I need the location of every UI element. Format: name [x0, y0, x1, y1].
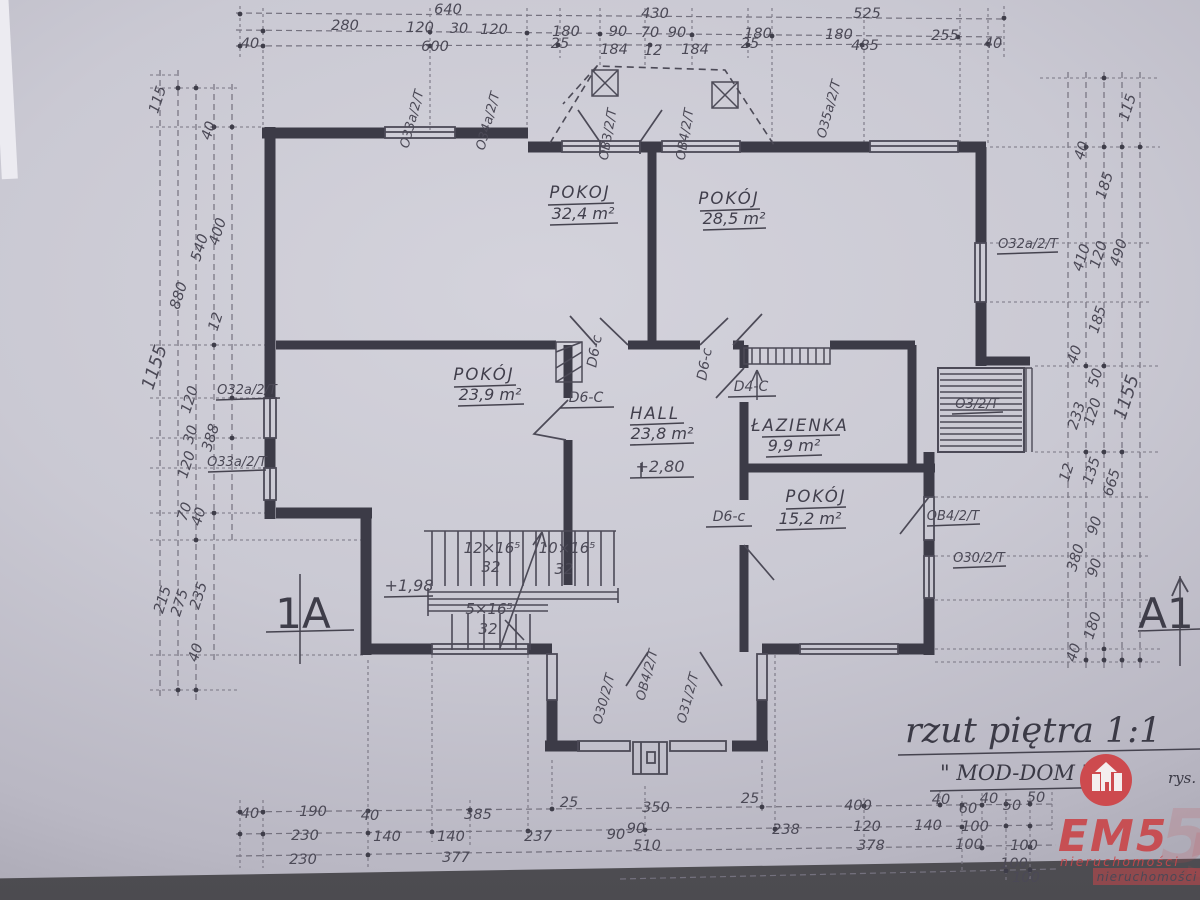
- door-label: D6-c: [584, 334, 605, 369]
- dims-right: 115 40 185 410 120 490 185 40 50 120 233…: [1057, 92, 1144, 664]
- dim-label: 12: [1057, 462, 1078, 484]
- dim-label: 40: [241, 806, 259, 822]
- dim-label: 180: [825, 27, 853, 43]
- dim-label: 30: [450, 21, 468, 37]
- room-area: 32,4 m²: [552, 204, 615, 223]
- window-label: O30/2/T: [953, 551, 1006, 566]
- room-name: ŁAZIENKA: [750, 416, 849, 435]
- dim-label: 40: [984, 36, 1002, 52]
- stair-label: 5×16⁵: [465, 600, 512, 618]
- dim-label: 230: [291, 828, 319, 844]
- dim-label: 237: [524, 829, 552, 845]
- window-label: OB4/2/T: [674, 106, 698, 161]
- dim-label: 385: [464, 807, 492, 823]
- dim-label: 25: [560, 795, 578, 811]
- dim-label: 184: [681, 42, 709, 58]
- watermark-subtitle: nieruchomości: [1060, 854, 1180, 869]
- window-label: O33a/2/T: [207, 455, 268, 470]
- studio-name: " MOD-DOM ": [940, 761, 1091, 785]
- dim-label: 185: [1086, 304, 1110, 335]
- window-label: OB4/2/T: [927, 509, 980, 524]
- dim-label: 12: [644, 43, 662, 59]
- room-area: 23,9 m²: [459, 385, 522, 404]
- stair-label: 32: [554, 560, 573, 578]
- watermark-band-text: nieruchomości: [1097, 870, 1198, 884]
- window-label: O33a/2/T: [398, 87, 428, 150]
- door-label: D6-c: [694, 347, 715, 382]
- dim-label: 238: [772, 822, 800, 838]
- dim-label: 540: [188, 232, 212, 263]
- dim-label: 1155: [1110, 372, 1144, 422]
- dim-label: 100: [1012, 870, 1040, 886]
- dim-label: 25: [741, 791, 759, 807]
- room-area: 28,5 m²: [703, 209, 766, 228]
- dim-label: 350: [642, 800, 670, 816]
- dim-label: 510: [633, 838, 661, 854]
- dim-label: 90: [627, 821, 645, 837]
- room-area: 15,2 m²: [779, 509, 842, 528]
- dim-label: 185: [1093, 170, 1117, 201]
- dim-label: 140: [914, 818, 942, 834]
- stair-label: 32: [481, 558, 500, 576]
- dim-label: 140: [373, 829, 401, 845]
- window-label: O32a/2/T: [998, 237, 1059, 252]
- dim-label: 377: [442, 850, 470, 866]
- dim-label: 135: [1080, 455, 1104, 486]
- dim-label: 115: [1116, 92, 1140, 123]
- window-label: O34a/2/T: [474, 89, 504, 152]
- dims-top: 640 430 525 280 120 30 120 180 90 70 90 …: [241, 2, 1002, 59]
- title-block: rzut piętra 1:1 " MOD-DOM " rys.: [898, 711, 1200, 791]
- window-label: OB3/2/T: [597, 106, 621, 161]
- dim-label: 378: [857, 838, 885, 854]
- door-label: D4-C: [734, 379, 769, 395]
- dim-label: 230: [289, 852, 317, 868]
- level-label: +2,80: [635, 457, 684, 476]
- drawing-title: rzut piętra 1:1: [905, 711, 1161, 751]
- window-label: OB4/2/T: [634, 647, 662, 703]
- window-symbols: [264, 127, 986, 751]
- exterior-walls: [262, 127, 986, 750]
- dim-label: 25: [741, 36, 759, 52]
- room-name: POKOJ: [549, 183, 610, 202]
- dim-label: 90: [607, 827, 625, 843]
- dim-label: 1155: [138, 342, 172, 392]
- window-label: O31/2/T: [675, 670, 703, 725]
- door-label: D6-c: [713, 509, 746, 525]
- dim-label: 525: [853, 6, 881, 22]
- bay-chimney: [633, 742, 667, 774]
- room-area: 23,8 m²: [631, 424, 694, 443]
- dim-label: 90: [609, 24, 627, 40]
- dim-label: 388: [199, 422, 223, 453]
- dim-label: 880: [167, 280, 191, 311]
- room-name: POKÓJ: [453, 365, 514, 384]
- dim-label: 25: [551, 36, 569, 52]
- stair-label: 32: [478, 620, 497, 638]
- dim-label: 90: [668, 25, 686, 41]
- dim-label: 40: [1072, 140, 1093, 162]
- dim-label: 115: [146, 84, 170, 115]
- window-label: O35a/2/T: [815, 77, 845, 140]
- window-label: O32a/2/T: [217, 383, 278, 398]
- dim-label: 430: [641, 6, 669, 22]
- scanned-floor-plan: 640 430 525 280 120 30 120 180 90 70 90 …: [0, 0, 1200, 900]
- dim-label: 50: [1003, 798, 1021, 814]
- dim-label: 184: [600, 42, 628, 58]
- dim-label: 190: [299, 804, 327, 820]
- dim-label: 120: [1087, 239, 1111, 270]
- dim-label: 90: [1085, 515, 1106, 537]
- window-label: O3/2/T: [955, 397, 1000, 412]
- dim-label: 140: [437, 829, 465, 845]
- window-label: O30/2/T: [591, 671, 619, 726]
- dim-label: 40: [932, 792, 950, 808]
- dim-label: 485: [851, 38, 879, 54]
- dim-label: 40: [1064, 642, 1085, 664]
- drawn-by-label: rys.: [1168, 769, 1196, 787]
- dim-label: 100: [1010, 838, 1038, 854]
- level-label: +1,98: [384, 576, 433, 595]
- dim-label: 100: [955, 837, 983, 853]
- dim-label: 60: [959, 801, 977, 817]
- room-name: POKÓJ: [785, 487, 846, 506]
- floor-plan-drawing: 640 430 525 280 120 30 120 180 90 70 90 …: [0, 0, 1200, 900]
- dim-label: 40: [361, 808, 379, 824]
- stair-label: 12×16⁵: [464, 539, 521, 557]
- door-label: D6-C: [569, 390, 604, 406]
- room-name: HALL: [630, 404, 680, 423]
- dims-left: 115 40 400 540 880 12 1155 120 30 388 12…: [138, 84, 230, 664]
- dim-label: 280: [331, 18, 359, 34]
- dim-label: 600: [421, 39, 449, 55]
- dim-label: 40: [186, 642, 207, 664]
- dim-label: 235: [187, 580, 211, 611]
- dim-label: 120: [406, 20, 434, 36]
- dim-label: 120: [178, 384, 202, 415]
- dim-label: 490: [1107, 237, 1131, 268]
- dim-label: 665: [1100, 467, 1124, 498]
- room-name: POKÓJ: [698, 189, 759, 208]
- dim-label: 180: [1081, 610, 1105, 641]
- dim-label: 120: [480, 22, 508, 38]
- stair-label: 10×16⁵: [539, 539, 596, 557]
- dim-label: 30: [181, 424, 202, 446]
- dim-label: 90: [1085, 557, 1106, 579]
- dim-label: 12: [206, 311, 227, 333]
- dim-label: 40: [980, 791, 998, 807]
- dim-label: 70: [641, 25, 659, 41]
- entrance-canopy: [550, 66, 774, 145]
- dim-label: 100: [961, 819, 989, 835]
- dim-label: 40: [241, 36, 259, 52]
- dim-label: 40: [199, 120, 220, 142]
- dim-label: 400: [844, 798, 872, 814]
- room-area: 9,9 m²: [768, 436, 821, 455]
- dim-label: 255: [931, 28, 959, 44]
- dim-label: 640: [434, 2, 462, 18]
- dim-label: 50: [1027, 790, 1045, 806]
- dim-label: 120: [853, 819, 881, 835]
